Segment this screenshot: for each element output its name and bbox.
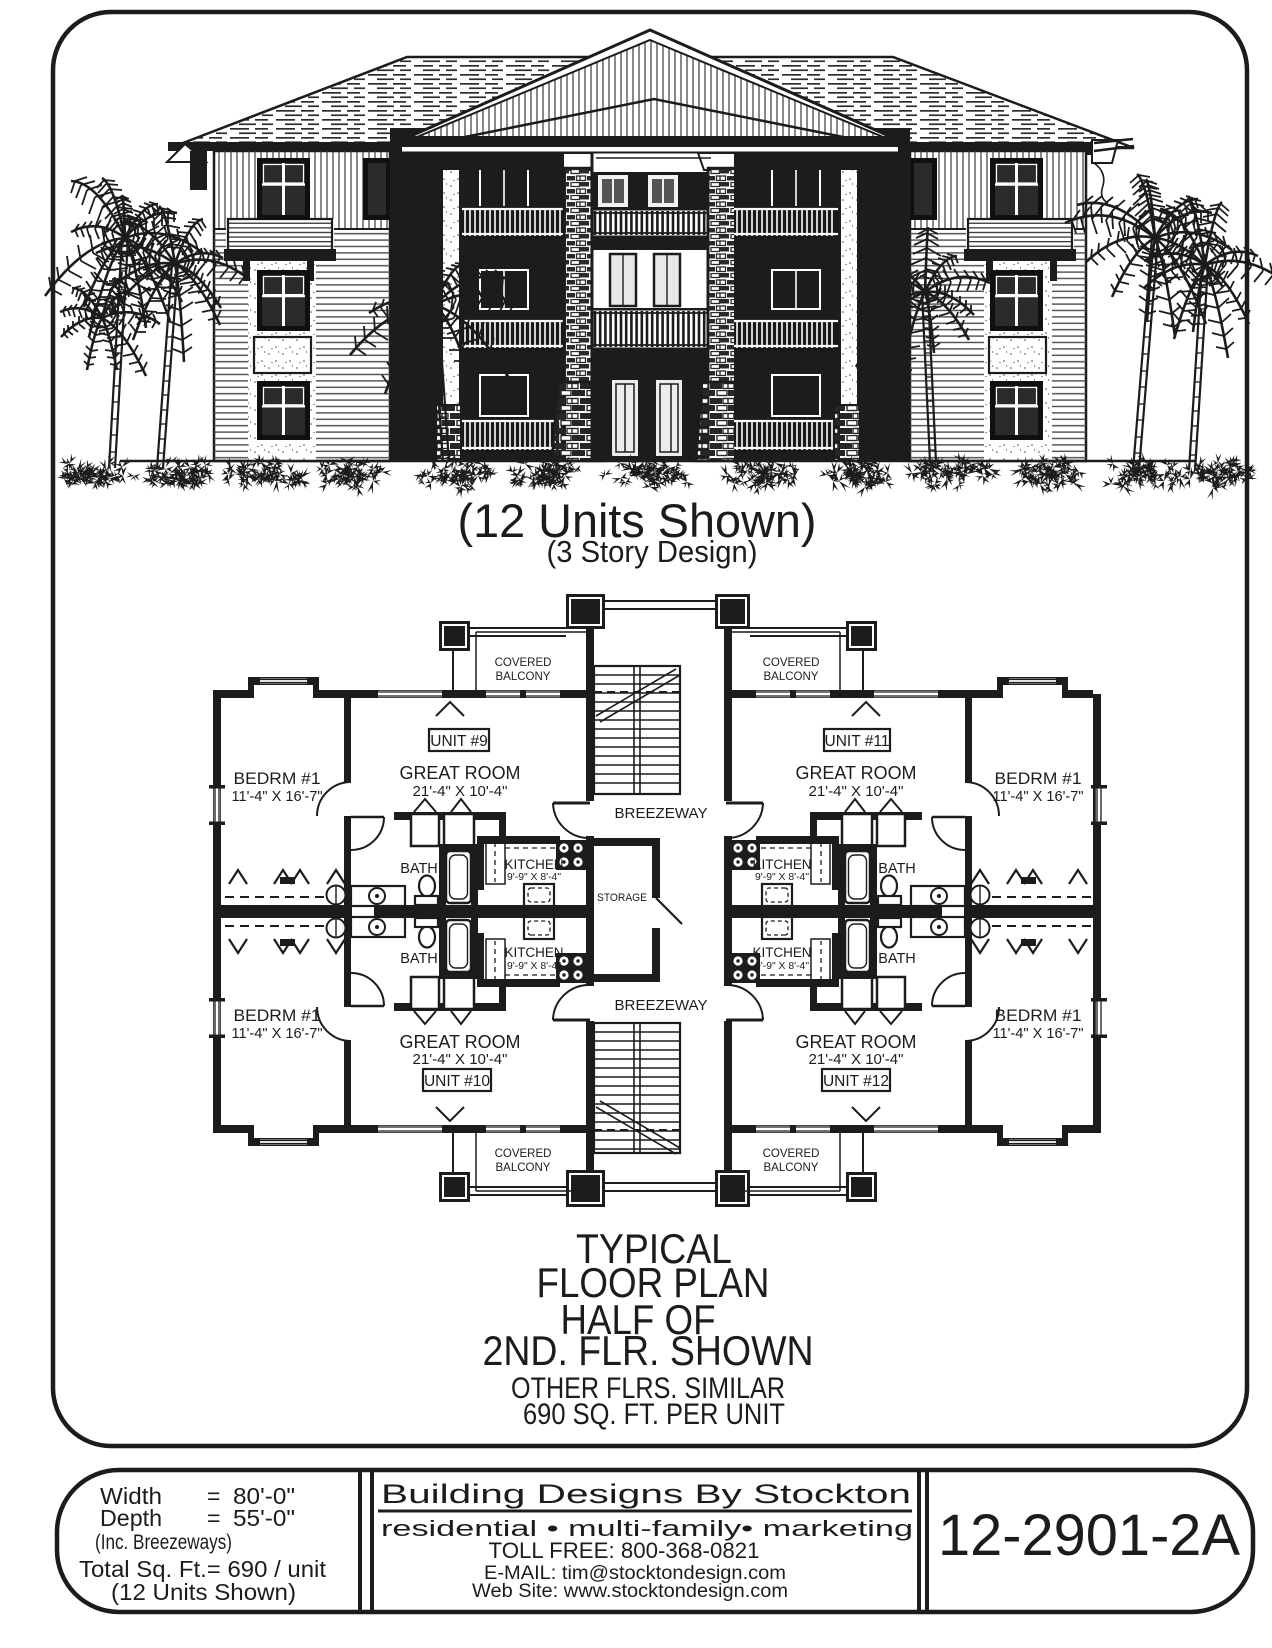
svg-text:12-2901-2A: 12-2901-2A bbox=[938, 1503, 1240, 1568]
svg-text:COVERED: COVERED bbox=[495, 1148, 552, 1160]
svg-text:UNIT #9: UNIT #9 bbox=[430, 733, 487, 750]
svg-text:BALCONY: BALCONY bbox=[496, 671, 551, 683]
svg-text:KITCHEN: KITCHEN bbox=[505, 945, 564, 960]
svg-text:Web Site: www.stocktondesign.: Web Site: www.stocktondesign.com bbox=[472, 1581, 788, 1602]
svg-text:GREAT ROOM: GREAT ROOM bbox=[400, 763, 521, 783]
svg-text:BREEZEWAY: BREEZEWAY bbox=[615, 997, 708, 1014]
svg-text:=: = bbox=[207, 1505, 220, 1531]
svg-text:11'-4" X 16'-7": 11'-4" X 16'-7" bbox=[993, 789, 1084, 805]
svg-text:BALCONY: BALCONY bbox=[496, 1162, 551, 1174]
svg-text:BATH: BATH bbox=[400, 861, 438, 877]
svg-text:COVERED: COVERED bbox=[763, 1148, 820, 1160]
svg-text:9'-9" X 8'-4": 9'-9" X 8'-4" bbox=[507, 871, 561, 883]
svg-text:COVERED: COVERED bbox=[763, 657, 820, 669]
svg-text:11'-4" X 16'-7": 11'-4" X 16'-7" bbox=[993, 1026, 1084, 1042]
svg-text:11'-4" X 16'-7": 11'-4" X 16'-7" bbox=[232, 1026, 323, 1042]
svg-text:21'-4" X 10'-4": 21'-4" X 10'-4" bbox=[809, 1052, 904, 1068]
svg-text:55'-0": 55'-0" bbox=[233, 1505, 295, 1531]
svg-text:UNIT #10: UNIT #10 bbox=[424, 1073, 490, 1090]
svg-text:BEDRM #1: BEDRM #1 bbox=[995, 1006, 1082, 1025]
svg-text:GREAT ROOM: GREAT ROOM bbox=[796, 1032, 917, 1052]
svg-text:2ND. FLR. SHOWN: 2ND. FLR. SHOWN bbox=[483, 1327, 814, 1374]
svg-text:KITCHEN: KITCHEN bbox=[505, 857, 564, 872]
svg-text:BALCONY: BALCONY bbox=[764, 1162, 819, 1174]
svg-text:(12 Units Shown): (12 Units Shown) bbox=[111, 1579, 296, 1605]
svg-text:9'-9" X 8'-4": 9'-9" X 8'-4" bbox=[755, 871, 809, 883]
svg-text:KITCHEN: KITCHEN bbox=[753, 945, 812, 960]
svg-text:UNIT #12: UNIT #12 bbox=[823, 1073, 889, 1090]
svg-text:9'-9" X 8'-4": 9'-9" X 8'-4" bbox=[507, 960, 561, 972]
svg-text:21'-4" X 10'-4": 21'-4" X 10'-4" bbox=[809, 784, 904, 800]
svg-text:21'-4" X 10'-4": 21'-4" X 10'-4" bbox=[413, 784, 508, 800]
svg-text:BEDRM #1: BEDRM #1 bbox=[234, 769, 321, 788]
svg-text:21'-4" X 10'-4": 21'-4" X 10'-4" bbox=[413, 1052, 508, 1068]
svg-text:GREAT ROOM: GREAT ROOM bbox=[796, 763, 917, 783]
svg-text:GREAT ROOM: GREAT ROOM bbox=[400, 1032, 521, 1052]
svg-text:BEDRM #1: BEDRM #1 bbox=[995, 769, 1082, 788]
svg-text:STORAGE: STORAGE bbox=[597, 892, 647, 904]
svg-text:BATH: BATH bbox=[400, 951, 438, 967]
svg-text:TOLL FREE: 800-368-0821: TOLL FREE: 800-368-0821 bbox=[489, 1538, 760, 1563]
svg-text:COVERED: COVERED bbox=[495, 657, 552, 669]
svg-text:9'-9" X 8'-4": 9'-9" X 8'-4" bbox=[755, 960, 809, 972]
svg-text:BREEZEWAY: BREEZEWAY bbox=[615, 805, 708, 822]
svg-text:BATH: BATH bbox=[878, 951, 916, 967]
svg-text:Depth: Depth bbox=[100, 1505, 162, 1531]
svg-text:BEDRM #1: BEDRM #1 bbox=[234, 1006, 321, 1025]
svg-text:690 SQ. FT. PER UNIT: 690 SQ. FT. PER UNIT bbox=[523, 1398, 785, 1431]
svg-text:BALCONY: BALCONY bbox=[764, 671, 819, 683]
svg-text:KITCHEN: KITCHEN bbox=[753, 857, 812, 872]
svg-text:UNIT #11: UNIT #11 bbox=[825, 733, 890, 750]
svg-text:(3 Story Design): (3 Story Design) bbox=[547, 534, 758, 569]
svg-text:BATH: BATH bbox=[878, 861, 916, 877]
svg-text:Building Designs By Stockton: Building Designs By Stockton bbox=[381, 1479, 911, 1509]
svg-text:11'-4" X 16'-7": 11'-4" X 16'-7" bbox=[232, 789, 323, 805]
svg-text:(Inc. Breezeways): (Inc. Breezeways) bbox=[95, 1531, 232, 1554]
